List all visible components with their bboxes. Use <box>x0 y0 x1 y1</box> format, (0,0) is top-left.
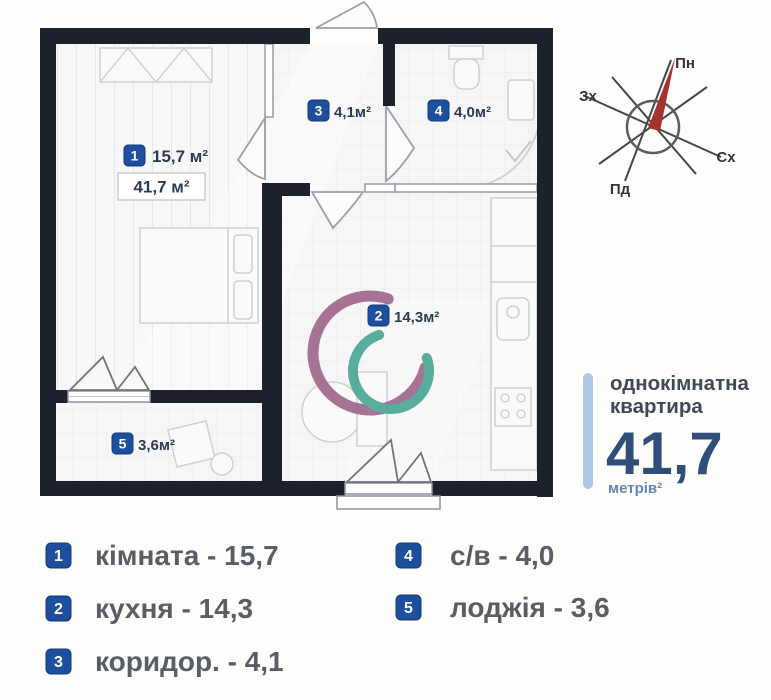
wall-top-left <box>40 28 310 44</box>
pillow <box>234 281 252 319</box>
compass-west-label: Зх <box>579 88 597 105</box>
wall-bottom-right <box>432 481 537 496</box>
floorplan-drawing: 1 15,7 м² 41,7 м² 3 4,1м² 4 4,0м² 2 14,3… <box>0 0 771 700</box>
entrance-door-swing <box>316 2 377 28</box>
stove <box>495 388 531 426</box>
legend-badge-4-number: 4 <box>404 548 413 565</box>
legend-item-3: 3 коридор. - 4,1 <box>46 646 284 677</box>
legend: 1 кімната - 15,7 2 кухня - 14,3 3 коридо… <box>46 540 610 677</box>
floor-plan: 1 15,7 м² 41,7 м² 3 4,1м² 4 4,0м² 2 14,3… <box>40 2 553 509</box>
summary-area-value: 41,7 <box>606 420 723 487</box>
legend-label-5: лоджія - 3,6 <box>450 592 610 623</box>
legend-label-3: коридор. - 4,1 <box>95 646 284 677</box>
room-1-area-label: 15,7 м² <box>152 147 208 166</box>
compass-needle <box>648 58 675 131</box>
floorplan-page: 1 15,7 м² 41,7 м² 3 4,1м² 4 4,0м² 2 14,3… <box>0 0 771 700</box>
room-2-area-label: 14,3м² <box>394 309 439 326</box>
partition-corridor-kitchen <box>365 184 395 192</box>
wall-kitchen-top <box>262 183 310 196</box>
bathroom-sink <box>508 80 534 120</box>
sink-drain <box>507 306 519 318</box>
compass-rose: Пн Зх Сх Пд <box>579 55 736 198</box>
room-badge-2-number: 2 <box>375 308 383 324</box>
loggia-chair <box>211 453 233 475</box>
toilet-tank <box>449 46 483 59</box>
summary-accent-bar <box>583 373 593 489</box>
room-badge-3-number: 3 <box>315 103 323 119</box>
wall-left <box>40 28 56 492</box>
compass-east-label: Сх <box>716 149 736 166</box>
wall-living-kitchen <box>262 183 282 481</box>
kitchen-window <box>345 483 432 494</box>
legend-badge-3-number: 3 <box>54 654 63 671</box>
summary-title-line1: однокімнатна <box>610 372 749 395</box>
legend-item-2: 2 кухня - 14,3 <box>46 593 253 624</box>
legend-label-2: кухня - 14,3 <box>95 593 253 624</box>
room-3-area-label: 4,1м² <box>334 104 371 121</box>
wall-bottom-left <box>40 481 345 496</box>
legend-badge-5-number: 5 <box>404 600 413 617</box>
toilet-bowl <box>454 59 479 89</box>
legend-badge-2-number: 2 <box>54 601 63 618</box>
loggia-table <box>168 421 215 467</box>
total-area-value: 41,7 м² <box>133 178 189 197</box>
compass-south-label: Пд <box>610 181 631 198</box>
pillow <box>234 235 252 273</box>
kitchen-sink <box>497 298 529 340</box>
wall-right <box>537 28 553 497</box>
legend-item-4: 4 с/в - 4,0 <box>396 540 554 571</box>
room-badge-4-number: 4 <box>435 103 443 119</box>
summary-title-line2: квартира <box>610 395 703 418</box>
compass-north-label: Пн <box>675 55 695 72</box>
partition-bathroom-kitchen <box>395 184 537 192</box>
legend-item-1: 1 кімната - 15,7 <box>46 540 279 571</box>
wall-corridor-bathroom <box>383 44 395 106</box>
room-5-area-label: 3,6м² <box>138 437 175 454</box>
wall-top-right <box>378 28 553 44</box>
wall-loggia-stub <box>40 390 68 403</box>
room-badge-5-number: 5 <box>119 436 127 452</box>
summary-block: однокімнатна квартира 41,7 метрів² <box>583 372 749 497</box>
room-4-area-label: 4,0м² <box>454 104 491 121</box>
partition-living-corridor <box>265 44 273 117</box>
legend-badge-1-number: 1 <box>54 548 63 565</box>
kitchen-window-sill <box>337 496 440 509</box>
room-badge-1-number: 1 <box>131 148 139 164</box>
summary-area-unit: метрів² <box>608 480 662 497</box>
legend-label-1: кімната - 15,7 <box>95 540 279 571</box>
wardrobe <box>100 48 212 82</box>
legend-item-5: 5 лоджія - 3,6 <box>396 592 610 623</box>
legend-label-4: с/в - 4,0 <box>450 540 554 571</box>
